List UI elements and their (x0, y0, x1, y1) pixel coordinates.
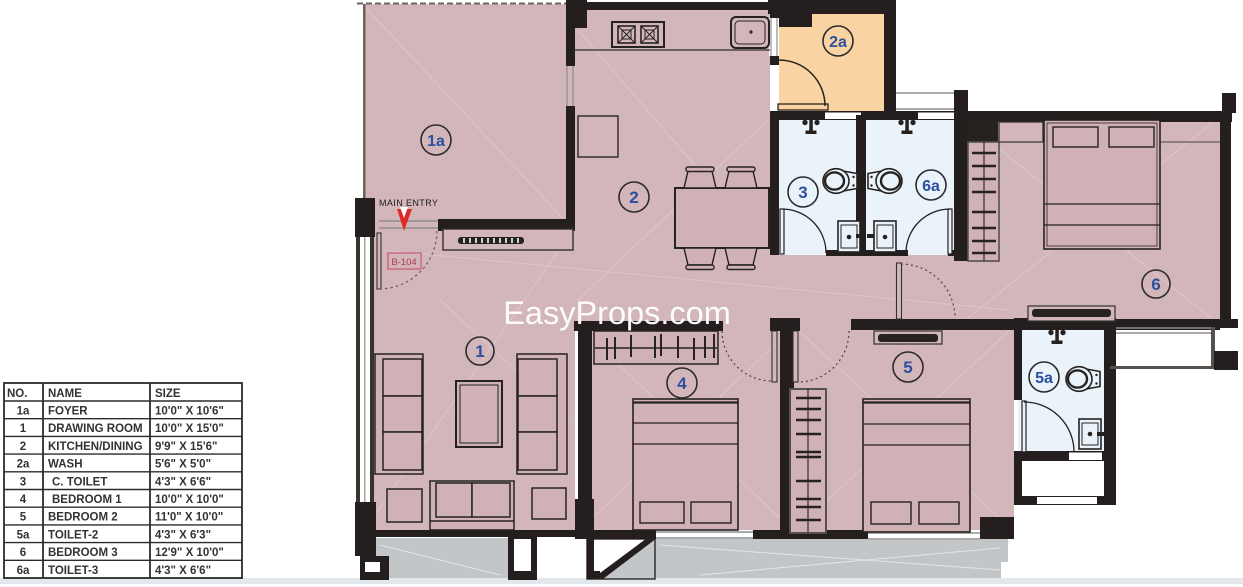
svg-text:10'0" X 10'6": 10'0" X 10'6" (155, 406, 224, 418)
svg-text:NO.: NO. (7, 388, 27, 400)
svg-text:FOYER: FOYER (48, 406, 88, 418)
svg-text:6a: 6a (922, 178, 940, 195)
svg-text:2a: 2a (17, 459, 30, 471)
svg-text:1a: 1a (17, 406, 30, 418)
svg-text:1: 1 (20, 423, 27, 435)
svg-text:NAME: NAME (48, 388, 82, 400)
svg-text:DRAWING ROOM: DRAWING ROOM (48, 423, 143, 435)
svg-text:10'0" X 10'0": 10'0" X 10'0" (155, 494, 224, 506)
svg-text:1: 1 (475, 342, 484, 361)
svg-text:BEDROOM 2: BEDROOM 2 (48, 512, 118, 524)
svg-text:B-104: B-104 (391, 257, 416, 268)
svg-text:11'0" X 10'0": 11'0" X 10'0" (155, 512, 223, 524)
svg-text:3: 3 (20, 476, 26, 488)
svg-text:12'9" X 10'0": 12'9" X 10'0" (155, 547, 224, 559)
svg-text:5: 5 (903, 358, 912, 377)
svg-text:4: 4 (20, 494, 27, 506)
svg-text:6: 6 (20, 547, 26, 559)
svg-text:4: 4 (677, 374, 687, 393)
svg-text:2a: 2a (829, 34, 847, 51)
svg-text:4'3" X 6'6": 4'3" X 6'6" (155, 476, 211, 488)
svg-text:3: 3 (798, 183, 807, 202)
svg-text:MAIN ENTRY: MAIN ENTRY (379, 198, 438, 208)
svg-text:4'3" X 6'6": 4'3" X 6'6" (155, 565, 211, 577)
svg-text:2: 2 (20, 441, 26, 453)
svg-text:9'9" X 15'6": 9'9" X 15'6" (155, 441, 217, 453)
svg-text:EasyProps.com: EasyProps.com (503, 295, 731, 331)
svg-text:BEDROOM 1: BEDROOM 1 (52, 494, 122, 506)
svg-text:4'3" X 6'3": 4'3" X 6'3" (155, 529, 211, 541)
svg-text:WASH: WASH (48, 459, 83, 471)
svg-text:KITCHEN/DINING: KITCHEN/DINING (48, 441, 143, 453)
svg-text:BEDROOM 3: BEDROOM 3 (48, 547, 118, 559)
svg-text:6: 6 (1151, 275, 1160, 294)
svg-text:C. TOILET: C. TOILET (52, 476, 107, 488)
svg-text:TOILET-3: TOILET-3 (48, 565, 98, 577)
svg-text:2: 2 (629, 188, 638, 207)
svg-text:6a: 6a (17, 565, 30, 577)
svg-text:TOILET-2: TOILET-2 (48, 529, 98, 541)
svg-text:5a: 5a (17, 529, 30, 541)
svg-text:SIZE: SIZE (155, 388, 181, 400)
svg-text:10'0" X 15'0": 10'0" X 15'0" (155, 423, 224, 435)
svg-text:1a: 1a (427, 133, 445, 150)
svg-text:5: 5 (20, 512, 27, 524)
svg-text:5a: 5a (1035, 370, 1053, 387)
svg-text:5'6" X 5'0": 5'6" X 5'0" (155, 459, 211, 471)
